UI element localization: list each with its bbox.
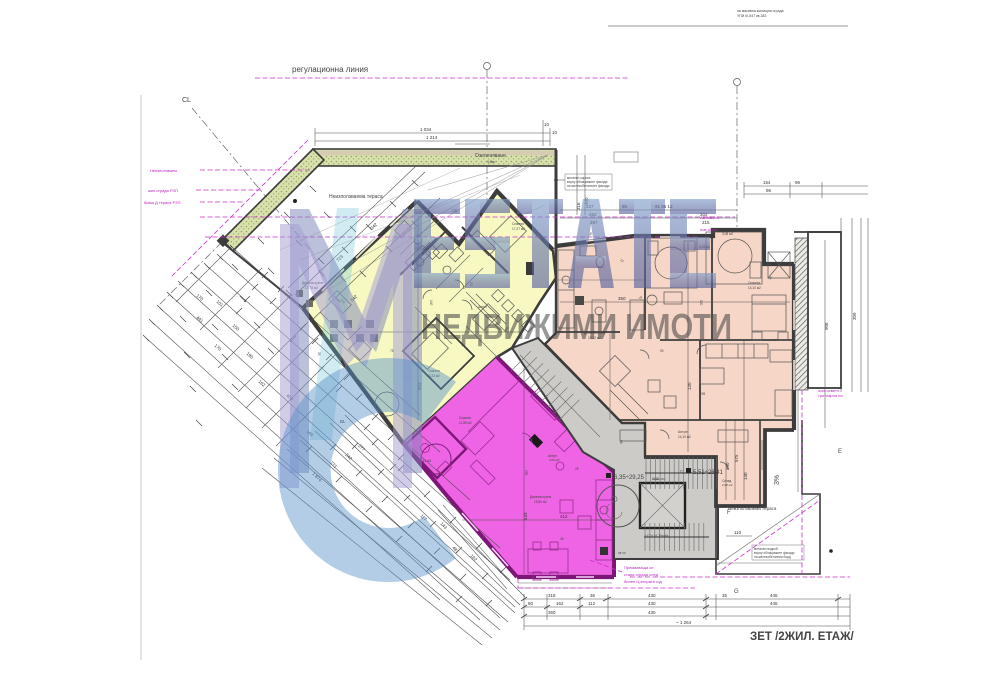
svg-text:120: 120 [687,382,692,390]
svg-text:533: 533 [523,512,528,520]
svg-text:45: 45 [560,537,564,541]
svg-text:5,51÷26,41: 5,51÷26,41 [693,470,724,476]
svg-text:9,8м²: 9,8м² [487,160,496,164]
svg-text:96: 96 [795,180,801,185]
svg-text:38 30: 38 30 [618,551,626,555]
svg-text:36: 36 [590,593,596,598]
svg-text:6,35÷29,25: 6,35÷29,25 [614,475,645,481]
svg-text:G: G [734,589,739,595]
svg-text:430: 430 [648,593,656,598]
svg-text:120: 120 [699,300,703,306]
svg-text:10: 10 [552,130,558,135]
svg-text:3%: 3% [774,475,781,485]
svg-text:бивш Д.тераса РЗП: бивш Д.тераса РЗП [144,200,181,205]
svg-text:350: 350 [618,296,626,301]
svg-text:Неизползваем: Неизползваем [150,168,177,173]
svg-text:14,10 м2: 14,10 м2 [748,286,761,290]
svg-text:412: 412 [560,514,568,519]
svg-text:на железобетонния борд: на железобетонния борд [754,555,791,559]
svg-text:3,08 м2: 3,08 м2 [722,232,733,236]
svg-text:НЕДВИЖИМИ ИМОТИ: НЕДВИЖИМИ ИМОТИ [421,306,732,347]
svg-text:1 214: 1 214 [426,135,438,140]
svg-text:309: 309 [852,312,857,320]
svg-text:140: 140 [743,472,748,480]
svg-text:215: 215 [702,220,710,225]
svg-text:430: 430 [648,610,656,615]
svg-text:80: 80 [528,601,534,606]
svg-text:~ 1 264: ~ 1 264 [676,620,692,625]
svg-text:190: 190 [725,462,730,470]
svg-text:19,80 м2: 19,80 м2 [534,500,547,504]
svg-text:14,10 м2: 14,10 м2 [678,435,691,439]
svg-text:112: 112 [588,601,596,606]
svg-text:УПИ III-547 кв.283: УПИ III-547 кв.283 [737,14,766,18]
svg-text:на масивна жилищна сграда: на масивна жилищна сграда [737,9,784,13]
svg-text:Озеленяване: Озеленяване [475,153,506,159]
svg-text:154: 154 [763,180,771,185]
svg-text:2,98 м2: 2,98 м2 [722,483,733,487]
svg-text:1 034: 1 034 [420,127,432,132]
svg-text:CL: CL [182,97,191,104]
svg-text:445: 445 [770,593,778,598]
svg-text:162: 162 [556,601,564,606]
svg-text:Антре: Антре [678,430,688,434]
svg-text:575: 575 [734,454,739,462]
svg-text:318: 318 [548,593,556,598]
svg-text:140: 140 [429,300,433,306]
svg-text:ЗЕТ /2ЖИЛ. ЕТАЖ/: ЗЕТ /2ЖИЛ. ЕТАЖ/ [750,631,854,643]
svg-text:25: 25 [575,467,579,471]
svg-text:96: 96 [766,188,772,193]
svg-text:90: 90 [660,349,664,353]
svg-text:316: 316 [576,202,581,210]
svg-text:Неизползваема тераса: Неизползваема тераса [728,506,777,511]
svg-text:регулационна линия: регулационна линия [292,65,368,74]
svg-text:3,06 м2: 3,06 м2 [549,458,560,462]
svg-text:тротоарна пл.: тротоарна пл. [818,393,844,398]
svg-text:350: 350 [548,610,556,615]
svg-text:10: 10 [544,122,550,127]
svg-text:Премахваща се: Премахваща се [624,565,654,570]
svg-text:11,89 м2: 11,89 м2 [459,421,472,425]
svg-text:110: 110 [734,530,742,535]
svg-text:Дневна кухня: Дневна кухня [530,495,551,499]
svg-text:на железобетонните фасади: на железобетонните фасади [567,184,610,188]
svg-text:билен Ц.втората год: билен Ц.втората год [624,579,663,584]
svg-text:стара сграда след: стара сграда след [624,572,659,577]
svg-text:жил.сгради РЗП: жил.сгради РЗП [148,188,178,193]
svg-text:+СТн 16,75табл: +СТн 16,75табл [645,534,669,538]
svg-text:15: 15 [544,395,548,399]
svg-text:96: 96 [619,440,623,444]
svg-text:13: 13 [679,470,683,474]
svg-text:430: 430 [648,601,656,606]
svg-text:150: 150 [653,477,659,481]
svg-text:445: 445 [770,601,778,606]
svg-text:Спалня: Спалня [459,416,471,420]
svg-text:205: 205 [700,392,706,396]
svg-text:35: 35 [722,593,728,598]
svg-text:нов обект: нов обект [700,227,718,232]
svg-text:230: 230 [524,470,528,476]
svg-text:F: F [727,510,731,516]
svg-text:Неизползваема тераса: Неизползваема тераса [329,194,383,200]
svg-text:Спалня: Спалня [748,281,760,285]
svg-text:АВ МВЗ-А: АВ МВЗ-А [700,215,719,220]
svg-text:908: 908 [824,322,829,330]
svg-text:Е: Е [838,449,842,455]
